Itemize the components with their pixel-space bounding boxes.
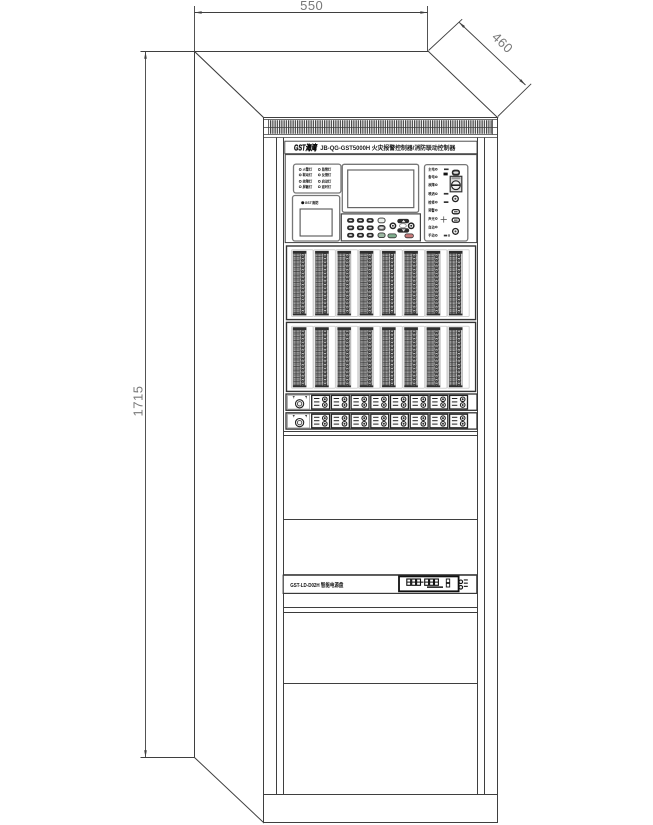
svg-text:主电: 主电 <box>428 167 435 172</box>
svg-text:喷洒: 喷洒 <box>428 191 435 196</box>
svg-text:1715: 1715 <box>131 386 146 417</box>
svg-text:启动灯: 启动灯 <box>322 179 332 184</box>
svg-text:备电: 备电 <box>427 174 435 179</box>
svg-text:监管灯: 监管灯 <box>322 167 332 172</box>
svg-text:GST消防: GST消防 <box>305 200 319 205</box>
svg-text:手动: 手动 <box>428 233 435 238</box>
svg-text:火警灯: 火警灯 <box>303 167 313 172</box>
svg-text:联动灯: 联动灯 <box>303 172 313 177</box>
svg-text:自动: 自动 <box>428 224 435 229</box>
svg-text:JB-QG-GST5000H 火灾报警控制器/消防联动控制器: JB-QG-GST5000H 火灾报警控制器/消防联动控制器 <box>320 144 456 152</box>
svg-text:GST海湾: GST海湾 <box>294 142 318 152</box>
svg-text:反馈灯: 反馈灯 <box>322 172 332 177</box>
svg-text:延时灯: 延时灯 <box>321 184 332 189</box>
svg-text:故障: 故障 <box>428 182 435 187</box>
svg-text:检修: 检修 <box>428 199 435 204</box>
svg-text:屏蔽灯: 屏蔽灯 <box>302 184 313 189</box>
svg-text:预警: 预警 <box>428 207 435 212</box>
svg-text:故障灯: 故障灯 <box>303 179 313 184</box>
svg-text:GST-LD-D02H 智能电源盘: GST-LD-D02H 智能电源盘 <box>290 581 344 589</box>
svg-text:550: 550 <box>300 0 323 13</box>
svg-text:声光: 声光 <box>427 216 435 221</box>
